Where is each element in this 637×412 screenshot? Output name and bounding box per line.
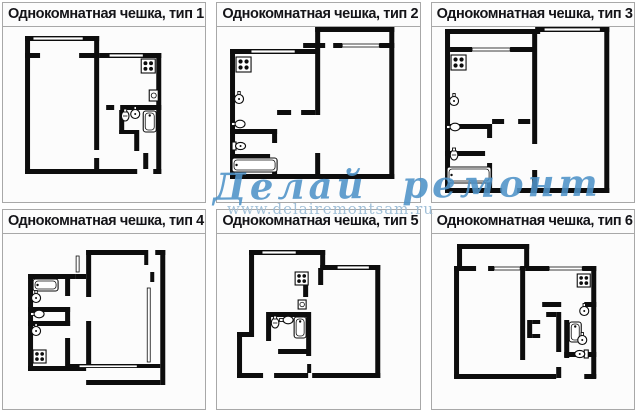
floorplan-card-6: Однокомнатная чешка, тип 6 (431, 209, 635, 410)
floor-plan (3, 234, 205, 409)
floorplan-card-4: Однокомнатная чешка, тип 4 (2, 209, 206, 410)
floorplan-card-1: Однокомнатная чешка, тип 1 (2, 2, 206, 203)
floor-plan (3, 27, 205, 202)
floor-plan-area (432, 27, 634, 202)
floorplan-card-5: Однокомнатная чешка, тип 5 (216, 209, 420, 410)
floor-plan-area (217, 27, 419, 202)
floor-plan (217, 234, 419, 409)
floorplan-card-3: Однокомнатная чешка, тип 3 (431, 2, 635, 203)
floor-plan-area (3, 234, 205, 409)
floor-plan (432, 234, 634, 409)
panel-title: Однокомнатная чешка, тип 2 (217, 3, 419, 27)
floor-plan-area (3, 27, 205, 202)
panel-title: Однокомнатная чешка, тип 5 (217, 210, 419, 234)
panel-title: Однокомнатная чешка, тип 3 (432, 3, 634, 27)
floorplan-gallery: Однокомнатная чешка, тип 1 Однокомнатная… (0, 0, 637, 412)
floor-plan-area (432, 234, 634, 409)
floor-plan (217, 27, 419, 202)
panel-title: Однокомнатная чешка, тип 6 (432, 210, 634, 234)
panel-title: Однокомнатная чешка, тип 1 (3, 3, 205, 27)
floor-plan (432, 27, 634, 202)
floor-plan-area (217, 234, 419, 409)
panel-title: Однокомнатная чешка, тип 4 (3, 210, 205, 234)
floorplan-card-2: Однокомнатная чешка, тип 2 (216, 2, 420, 203)
